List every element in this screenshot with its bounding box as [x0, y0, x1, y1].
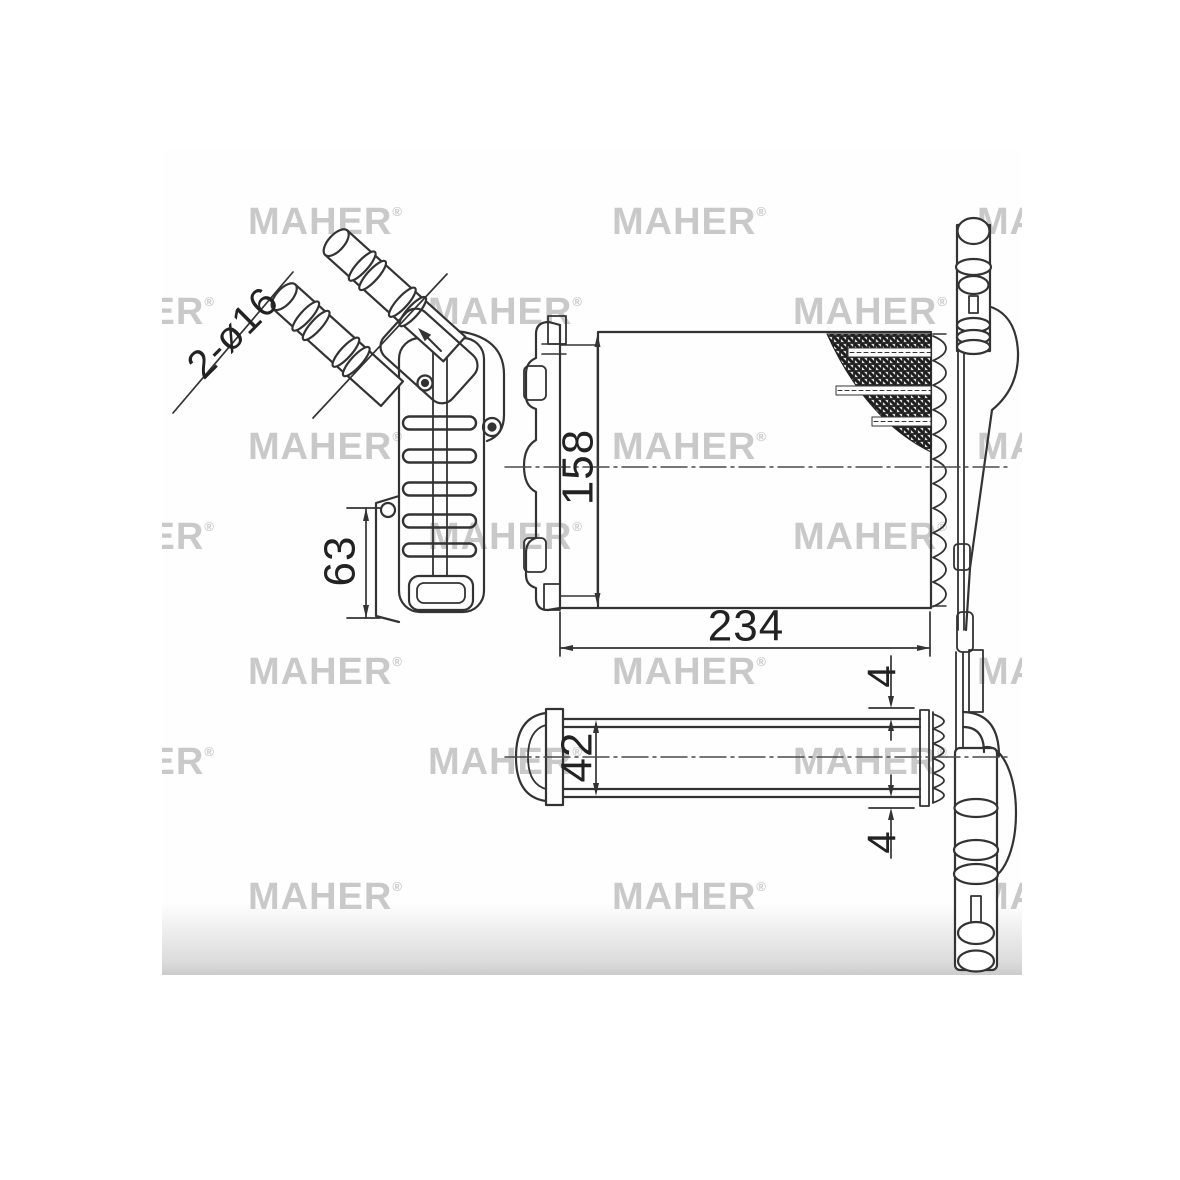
bracket-hole: [381, 503, 395, 517]
dimension-label-core-depth: 42: [553, 732, 602, 783]
dimension-label-pipe-callout: 2-ø16: [179, 279, 288, 388]
core-top-face: [563, 719, 920, 797]
dimension-label-offset-bottom: 4: [860, 830, 904, 853]
dimension-label-mount-height: 63: [316, 536, 365, 587]
side-view: [954, 218, 1018, 972]
heater-core-technical-drawing: 2-ø16 158 234 63 42 4 4: [0, 0, 1180, 1180]
side-view-top-pipe: [956, 218, 991, 354]
mounting-bracket: [376, 496, 399, 622]
product-image: MAHER®MAHER®MAHER®MAHER®MAHER®MAHER®MAHE…: [0, 0, 1180, 1180]
side-view-bottom-pipe: [954, 712, 999, 972]
bolt-center: [422, 380, 428, 386]
corrugated-fin-edge: [933, 336, 946, 607]
bottom-corrugated-edge: [933, 714, 944, 803]
dimension-label-offset-top: 4: [860, 664, 904, 687]
dimension-label-core-width: 234: [708, 602, 784, 651]
dimension-label-core-height: 158: [554, 429, 603, 505]
